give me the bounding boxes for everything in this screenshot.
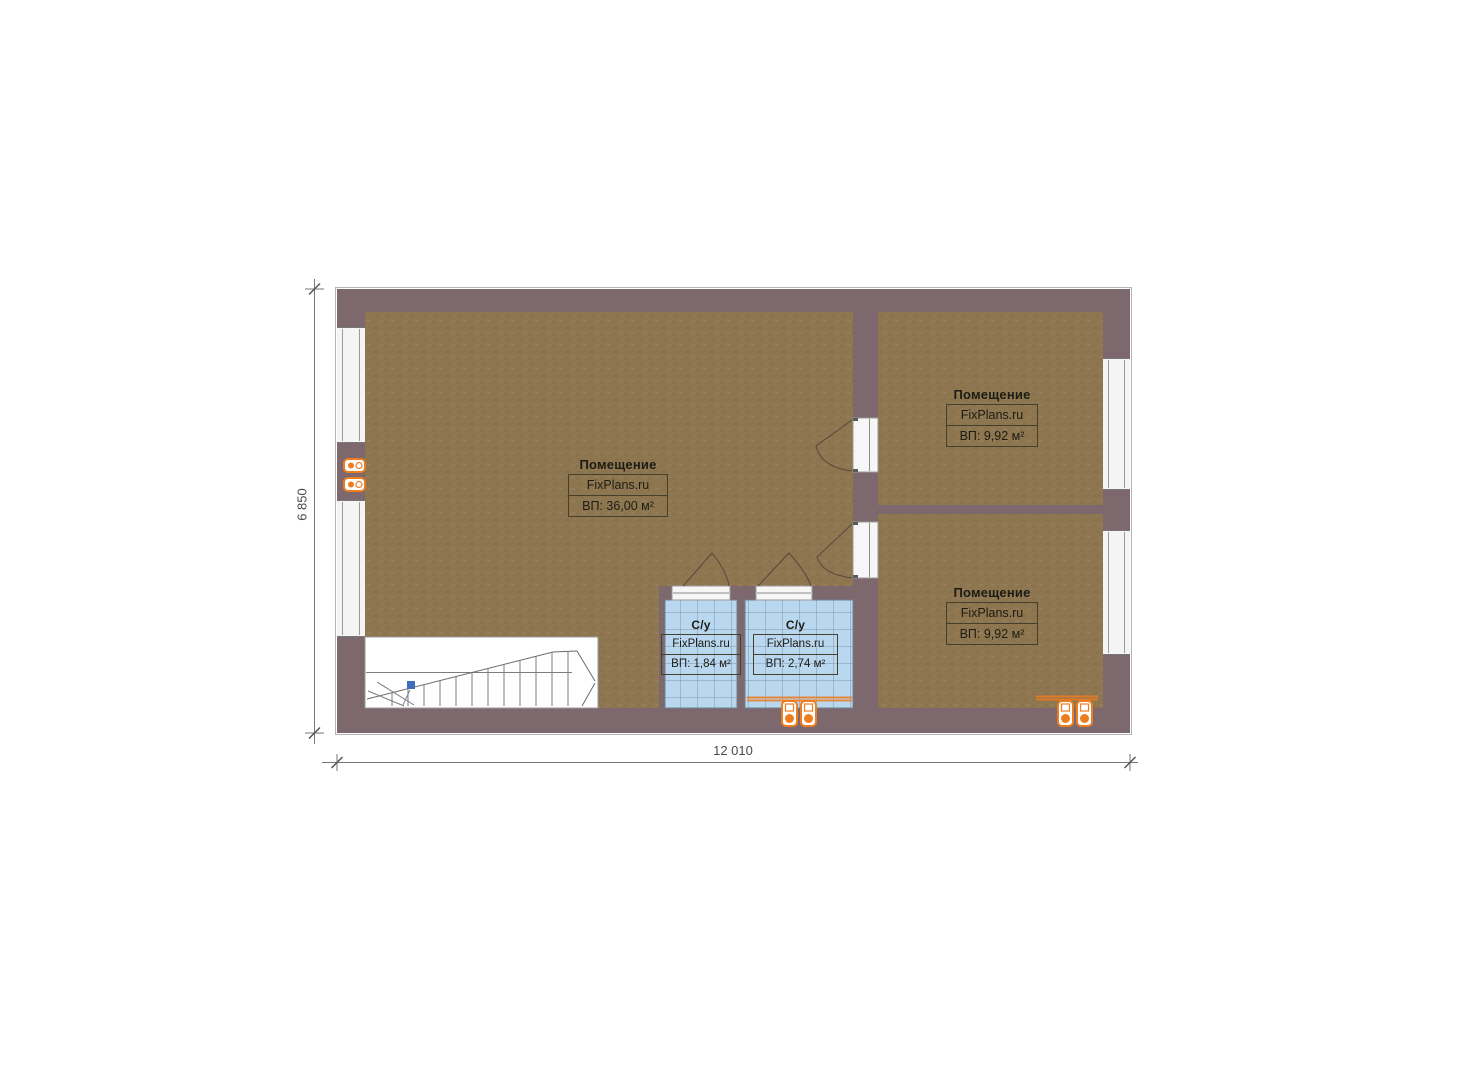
right-wall xyxy=(1103,289,1130,733)
internal-vertical-wall xyxy=(853,312,878,708)
bath-left-tiles xyxy=(665,600,737,708)
window-right-top xyxy=(1103,358,1130,490)
floor-plan-canvas: 6 850 12 010 Помещение FixPlans.ru ВП: 3… xyxy=(0,0,1474,1080)
window-left-bottom xyxy=(337,500,365,637)
double-socket-icon xyxy=(782,701,797,726)
internal-horizontal-wall xyxy=(878,505,1103,514)
double-socket-icon xyxy=(801,701,816,726)
top-wall xyxy=(337,289,1130,312)
window-right-bottom xyxy=(1103,530,1130,655)
staircase-icon xyxy=(365,637,598,708)
stair-direction-marker xyxy=(407,681,415,689)
bathroom-left-wall xyxy=(659,600,665,708)
bathroom-divider-wall xyxy=(737,600,745,708)
bathroom-floors xyxy=(665,600,853,708)
window-left-top xyxy=(337,327,365,443)
double-socket-icon xyxy=(344,459,365,472)
floor-plan-drawing xyxy=(0,0,1474,1080)
double-socket-icon xyxy=(1077,701,1092,726)
double-socket-icon xyxy=(344,478,365,491)
double-socket-icon xyxy=(1058,701,1073,726)
bath-right-tiles xyxy=(745,600,853,708)
bottom-wall xyxy=(337,708,1130,733)
